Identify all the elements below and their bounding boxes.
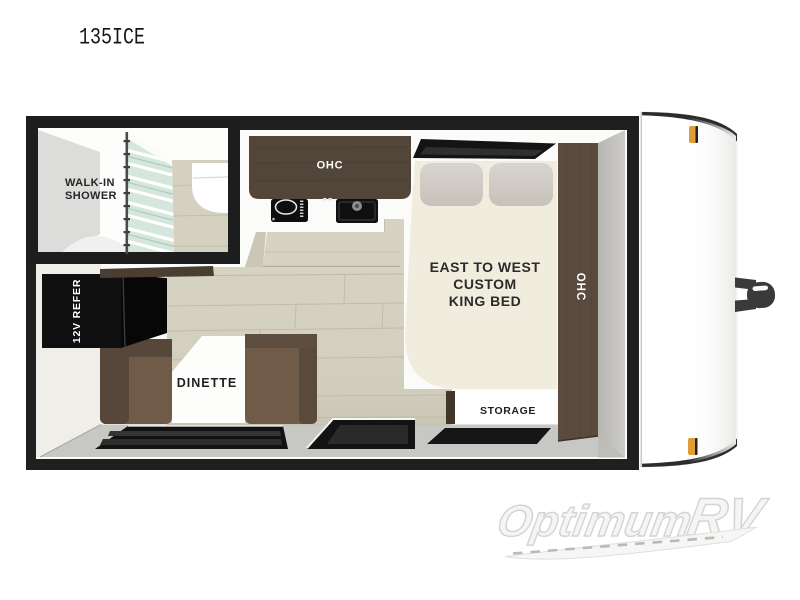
svg-text:OHC: OHC <box>317 160 344 172</box>
svg-text:CUSTOM: CUSTOM <box>453 276 516 292</box>
svg-text:SHOWER: SHOWER <box>65 190 117 202</box>
svg-text:WALK-IN: WALK-IN <box>65 177 115 189</box>
svg-text:KING BED: KING BED <box>449 293 521 309</box>
svg-text:DINETTE: DINETTE <box>177 376 237 390</box>
svg-text:STORAGE: STORAGE <box>480 405 536 417</box>
svg-text:135ICE: 135ICE <box>79 25 145 52</box>
svg-text:EAST TO WEST: EAST TO WEST <box>430 259 541 275</box>
svg-text:OHC: OHC <box>574 273 586 302</box>
svg-text:12V REFER: 12V REFER <box>71 279 83 343</box>
